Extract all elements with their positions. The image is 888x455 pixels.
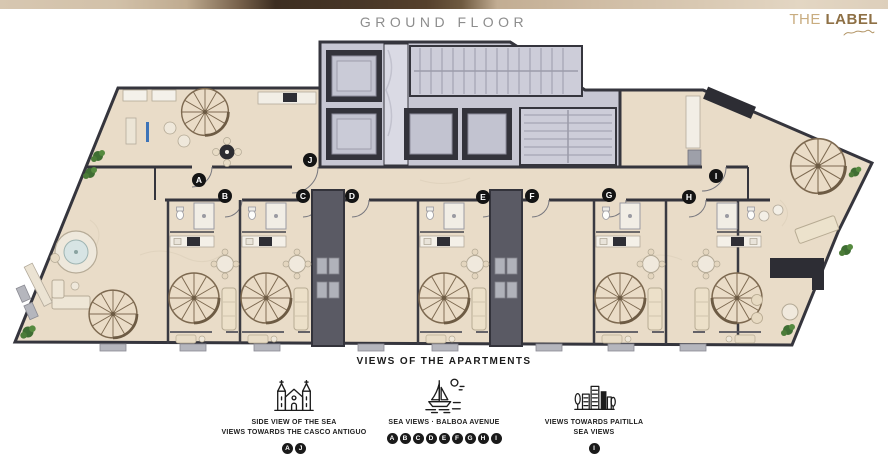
unit-badge-f[interactable]: F (525, 189, 539, 203)
unit-badge-j[interactable]: J (303, 153, 317, 167)
legend-badge-d: D (426, 433, 437, 444)
legend-badge-i: I (491, 433, 502, 444)
legend-badge-b: B (400, 433, 411, 444)
unit-badge-e[interactable]: E (476, 190, 490, 204)
legend-badge-i: I (589, 443, 600, 454)
legend-badges: ABCDEFGHI (387, 433, 502, 444)
legend-badge-f: F (452, 433, 463, 444)
legend-item-casco-antiguo: SIDE VIEW OF THE SEA VIEWS TOWARDS THE C… (219, 376, 369, 454)
core-staircase (410, 46, 582, 96)
views-legend: VIEWS OF THE APARTMENTS SIDE VIEW O (0, 356, 888, 454)
legend-item-paitilla: VIEWS TOWARDS PAITILLA SEA VIEWS I (519, 376, 669, 454)
core-block (320, 42, 620, 167)
legend-badge-a: A (387, 433, 398, 444)
legend-badge-c: C (413, 433, 424, 444)
legend-line: VIEWS TOWARDS PAITILLA (545, 418, 644, 428)
legend-badge-a: A (282, 443, 293, 454)
sailboat-icon (421, 376, 467, 414)
legend-badge-e: E (439, 433, 450, 444)
balcony-slabs (100, 344, 706, 351)
spiral-staircase (89, 290, 137, 338)
legend-badge-g: G (465, 433, 476, 444)
legend-title: VIEWS OF THE APARTMENTS (0, 356, 888, 367)
unit-badge-g[interactable]: G (602, 188, 616, 202)
legend-line: SEA VIEWS · BALBOA AVENUE (388, 418, 499, 428)
unit-badge-c[interactable]: C (296, 189, 310, 203)
unit-badge-b[interactable]: B (218, 189, 232, 203)
legend-badges: I (589, 443, 600, 454)
legend-line: VIEWS TOWARDS THE CASCO ANTIGUO (221, 428, 366, 438)
legend-badges: AJ (282, 443, 306, 454)
legend-badge-h: H (478, 433, 489, 444)
unit-badge-i[interactable]: I (709, 169, 723, 183)
legend-line: SIDE VIEW OF THE SEA (251, 418, 336, 428)
cathedral-icon (271, 378, 317, 414)
unit-badge-h[interactable]: H (682, 190, 696, 204)
secondary-staircase (520, 108, 616, 165)
legend-line: SEA VIEWS (574, 428, 615, 438)
spiral-staircase (182, 89, 229, 136)
unit-badge-d[interactable]: D (345, 189, 359, 203)
page: GROUND FLOOR THE LABEL (0, 0, 888, 455)
legend-item-balboa-avenue: SEA VIEWS · BALBOA AVENUE ABCDEFGHI (369, 376, 519, 454)
skyline-icon (571, 378, 617, 414)
spiral-staircase (791, 139, 846, 194)
unit-badge-a[interactable]: A (192, 173, 206, 187)
legend-badge-j: J (295, 443, 306, 454)
